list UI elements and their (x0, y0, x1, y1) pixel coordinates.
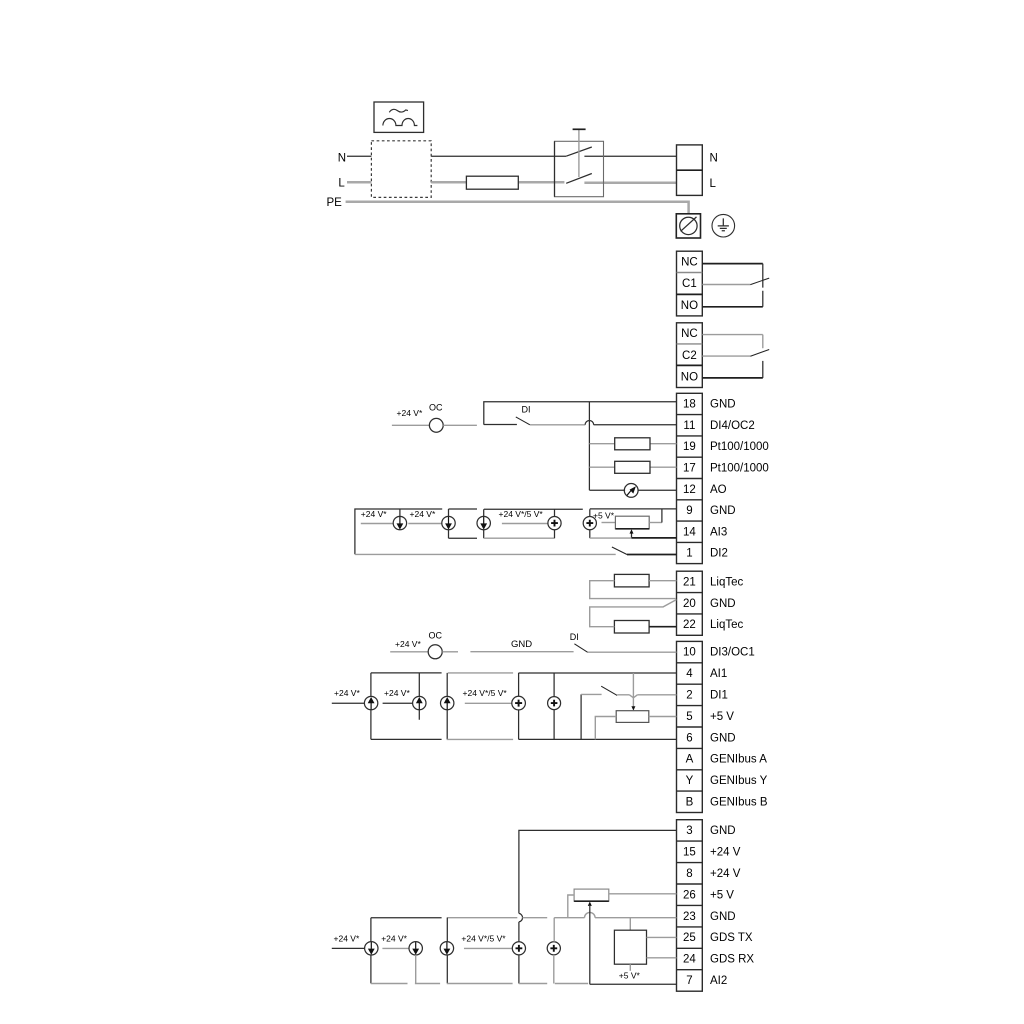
svg-text:+24 V*: +24 V* (361, 509, 387, 519)
svg-text:GENIbus B: GENIbus B (710, 796, 768, 808)
svg-text:DI: DI (522, 404, 531, 414)
svg-text:B: B (686, 796, 694, 808)
svg-text:+24 V: +24 V (710, 868, 741, 880)
svg-text:12: 12 (683, 484, 696, 496)
svg-text:N: N (710, 153, 718, 165)
svg-text:GND: GND (511, 639, 532, 650)
svg-text:A: A (686, 754, 694, 766)
svg-text:GND: GND (710, 598, 736, 610)
svg-text:+24 V*: +24 V* (397, 408, 423, 418)
svg-text:4: 4 (686, 668, 693, 680)
svg-text:GENIbus Y: GENIbus Y (710, 775, 768, 787)
svg-text:AI1: AI1 (710, 668, 727, 680)
svg-text:+5 V: +5 V (710, 889, 734, 901)
svg-text:+24 V*/5 V*: +24 V*/5 V* (461, 933, 506, 943)
svg-text:DI4/OC2: DI4/OC2 (710, 420, 755, 432)
svg-text:14: 14 (683, 526, 696, 538)
svg-text:NC: NC (681, 328, 698, 340)
svg-text:+24 V*: +24 V* (334, 933, 360, 943)
svg-text:8: 8 (686, 868, 692, 880)
svg-text:L: L (710, 178, 717, 190)
svg-text:AI2: AI2 (710, 975, 727, 987)
svg-text:1: 1 (686, 548, 692, 560)
svg-text:Pt100/1000: Pt100/1000 (710, 463, 769, 475)
svg-text:NC: NC (681, 257, 698, 269)
svg-text:GENIbus A: GENIbus A (710, 754, 767, 766)
svg-text:OC: OC (429, 631, 443, 641)
svg-text:N: N (338, 152, 346, 164)
svg-text:L: L (338, 178, 345, 190)
svg-text:+24 V*: +24 V* (334, 688, 360, 698)
svg-text:+24 V*: +24 V* (410, 509, 436, 519)
svg-text:6: 6 (686, 732, 692, 744)
svg-text:17: 17 (683, 463, 696, 475)
svg-text:LiqTec: LiqTec (710, 619, 743, 631)
svg-text:C1: C1 (682, 278, 697, 290)
svg-text:GDS TX: GDS TX (710, 932, 753, 944)
svg-text:26: 26 (683, 889, 696, 901)
svg-text:LiqTec: LiqTec (710, 577, 743, 589)
svg-text:GND: GND (710, 505, 736, 517)
svg-text:+5 V: +5 V (710, 711, 734, 723)
svg-text:+24 V*/5 V*: +24 V*/5 V* (499, 509, 544, 519)
svg-text:11: 11 (683, 420, 695, 432)
svg-text:15: 15 (683, 847, 696, 859)
svg-text:3: 3 (686, 825, 692, 837)
svg-text:18: 18 (683, 399, 696, 411)
svg-text:C2: C2 (682, 350, 697, 362)
svg-text:19: 19 (683, 441, 696, 453)
svg-text:9: 9 (686, 505, 692, 517)
svg-text:Y: Y (686, 775, 694, 787)
svg-text:Pt100/1000: Pt100/1000 (710, 441, 769, 453)
svg-text:AO: AO (710, 484, 727, 496)
svg-text:GND: GND (710, 911, 736, 923)
svg-text:23: 23 (683, 911, 696, 923)
svg-text:DI2: DI2 (710, 548, 728, 560)
svg-text:2: 2 (686, 690, 692, 702)
svg-text:22: 22 (683, 619, 696, 631)
svg-text:AI3: AI3 (710, 526, 727, 538)
svg-text:GDS RX: GDS RX (710, 954, 754, 966)
svg-text:+5 V*: +5 V* (619, 970, 641, 980)
svg-text:+5 V*: +5 V* (593, 511, 615, 521)
svg-text:GND: GND (710, 399, 736, 411)
svg-text:+24 V*: +24 V* (395, 639, 421, 649)
svg-text:OC: OC (429, 402, 443, 412)
svg-text:DI3/OC1: DI3/OC1 (710, 647, 755, 659)
svg-text:5: 5 (686, 711, 692, 723)
svg-text:+24 V*: +24 V* (381, 933, 407, 943)
svg-text:7: 7 (686, 975, 692, 987)
svg-text:NO: NO (681, 371, 698, 383)
svg-text:20: 20 (683, 598, 696, 610)
svg-text:+24 V*/5 V*: +24 V*/5 V* (463, 688, 508, 698)
svg-text:24: 24 (683, 954, 696, 966)
svg-text:DI1: DI1 (710, 690, 728, 702)
svg-text:GND: GND (710, 825, 736, 837)
svg-text:DI: DI (570, 632, 579, 642)
svg-text:21: 21 (683, 577, 696, 589)
svg-text:NO: NO (681, 300, 698, 312)
svg-text:25: 25 (683, 932, 696, 944)
svg-text:GND: GND (710, 732, 736, 744)
svg-text:+24 V: +24 V (710, 847, 741, 859)
svg-text:10: 10 (683, 647, 696, 659)
svg-text:+24 V*: +24 V* (384, 688, 410, 698)
svg-text:PE: PE (327, 197, 343, 209)
